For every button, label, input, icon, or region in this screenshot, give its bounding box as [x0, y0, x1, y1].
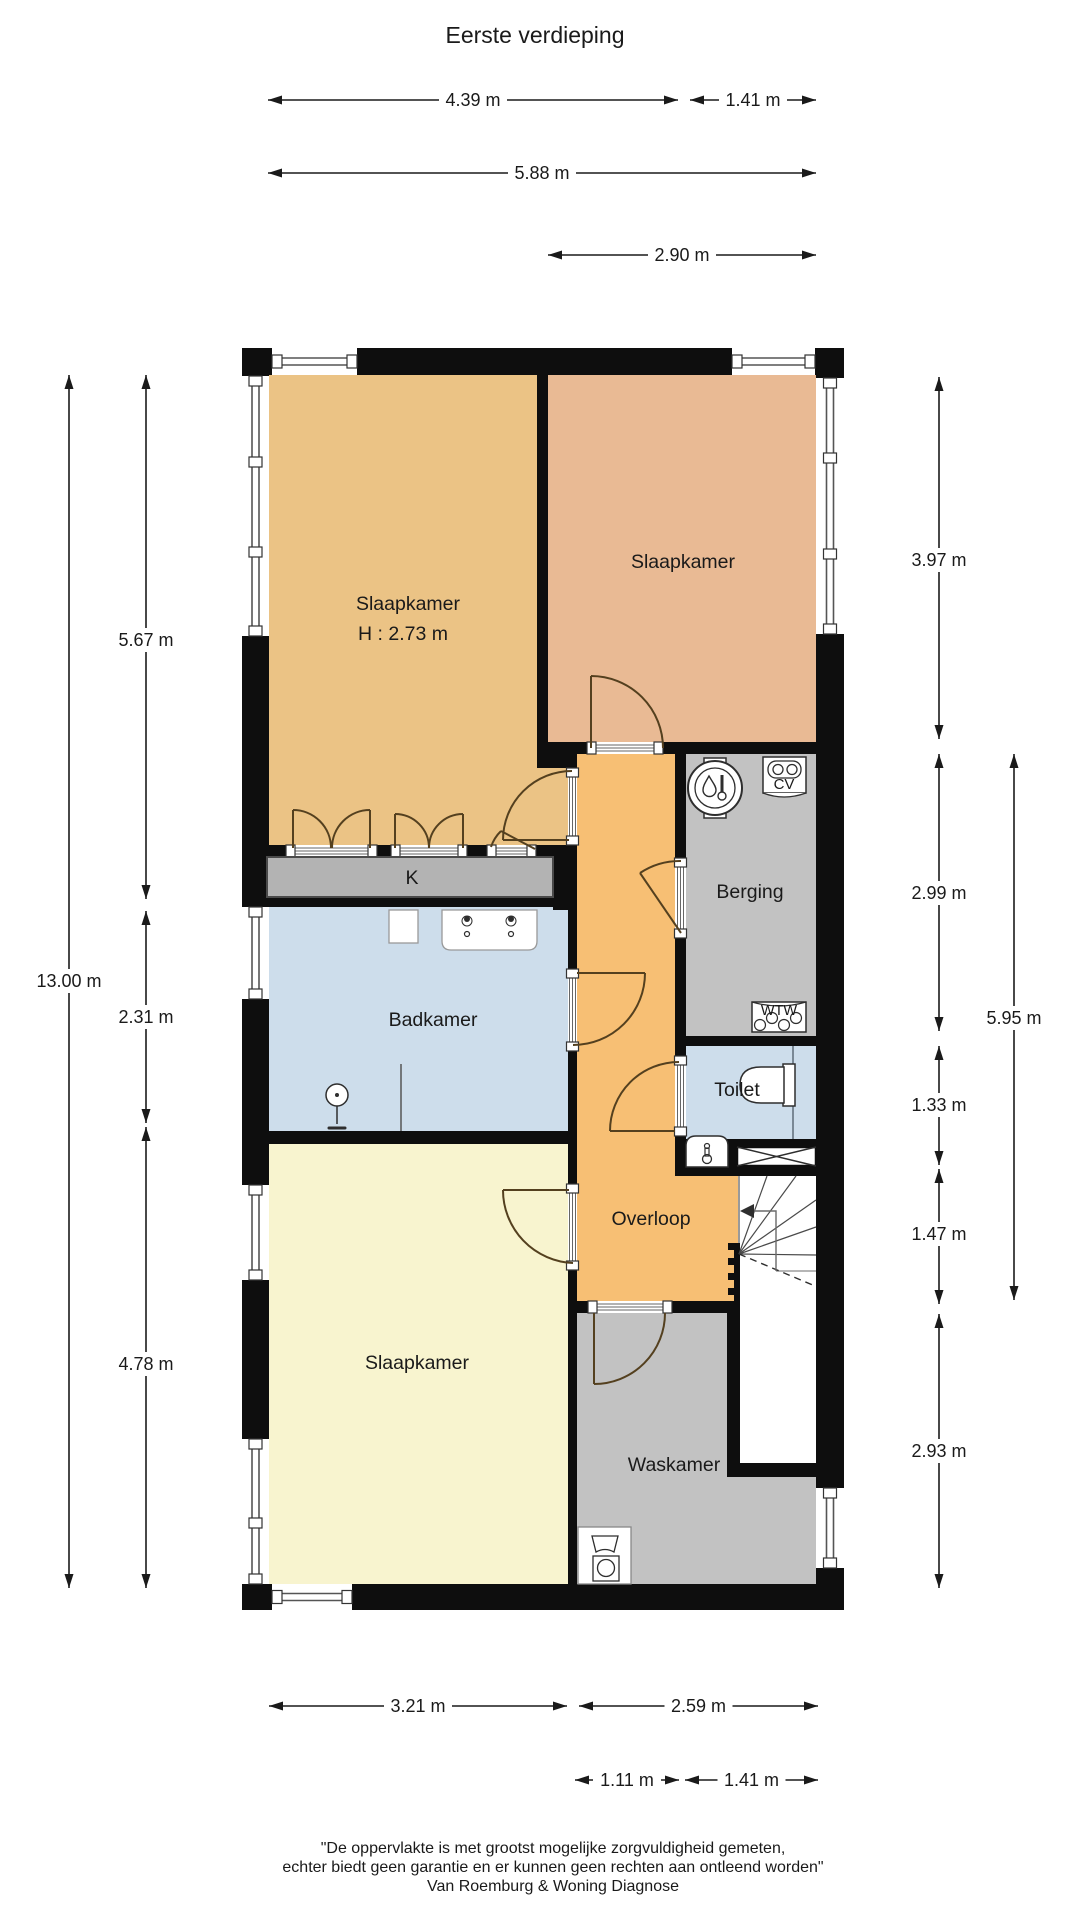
svg-text:3.97 m: 3.97 m [911, 550, 966, 570]
svg-text:Van Roemburg & Woning Diagnose: Van Roemburg & Woning Diagnose [427, 1878, 679, 1895]
svg-text:Toilet: Toilet [714, 1079, 760, 1101]
svg-text:Slaapkamer: Slaapkamer [365, 1352, 470, 1374]
svg-text:Waskamer: Waskamer [628, 1454, 721, 1476]
svg-text:1.41 m: 1.41 m [725, 90, 780, 110]
svg-text:echter biedt geen garantie en: echter biedt geen garantie en er kunnen … [282, 1859, 823, 1876]
svg-text:Slaapkamer: Slaapkamer [631, 551, 736, 573]
svg-text:2.31 m: 2.31 m [118, 1007, 173, 1027]
svg-text:Berging: Berging [716, 881, 783, 903]
svg-text:"De oppervlakte is met grootst: "De oppervlakte is met grootst mogelijke… [321, 1840, 786, 1857]
svg-text:Overloop: Overloop [611, 1208, 690, 1230]
svg-text:H : 2.73 m: H : 2.73 m [358, 623, 448, 645]
svg-text:CV: CV [774, 776, 795, 793]
svg-text:3.21 m: 3.21 m [390, 1696, 445, 1716]
svg-text:4.39 m: 4.39 m [445, 90, 500, 110]
svg-text:Eerste verdieping: Eerste verdieping [446, 22, 625, 48]
svg-text:2.99 m: 2.99 m [911, 883, 966, 903]
svg-text:Slaapkamer: Slaapkamer [356, 593, 461, 615]
svg-text:5.88 m: 5.88 m [514, 163, 569, 183]
svg-text:5.95 m: 5.95 m [986, 1008, 1041, 1028]
svg-text:2.59 m: 2.59 m [671, 1696, 726, 1716]
svg-text:Badkamer: Badkamer [389, 1009, 478, 1031]
svg-text:13.00 m: 13.00 m [36, 971, 101, 991]
svg-text:K: K [405, 867, 418, 889]
svg-text:5.67 m: 5.67 m [118, 630, 173, 650]
svg-text:1.11 m: 1.11 m [600, 1770, 654, 1790]
svg-text:2.93 m: 2.93 m [911, 1441, 966, 1461]
svg-text:2.90 m: 2.90 m [654, 245, 709, 265]
svg-text:WTW: WTW [761, 1003, 798, 1019]
svg-text:4.78 m: 4.78 m [118, 1354, 173, 1374]
svg-text:1.47 m: 1.47 m [911, 1224, 966, 1244]
svg-text:1.41 m: 1.41 m [724, 1770, 779, 1790]
svg-text:1.33 m: 1.33 m [911, 1095, 966, 1115]
